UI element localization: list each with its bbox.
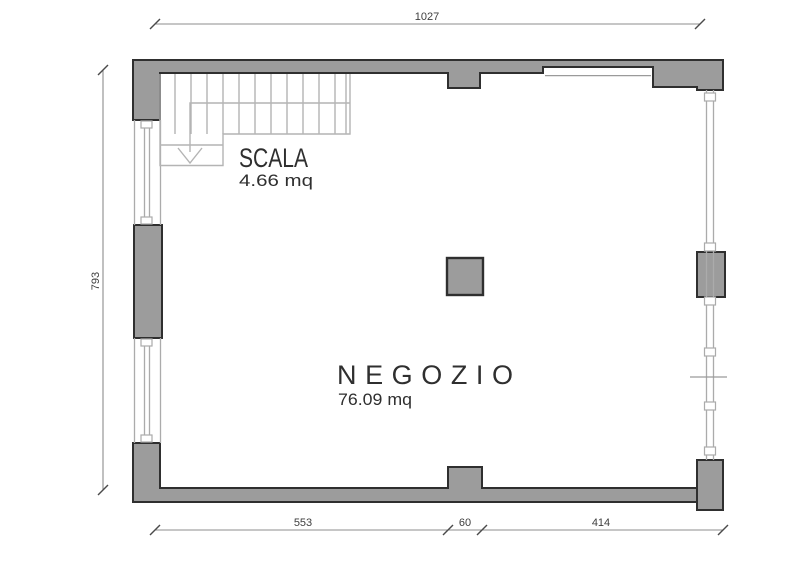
window-mullion <box>141 339 152 346</box>
room-label-negozio: NEGOZIO 76.09 mq <box>337 360 513 409</box>
glass-mullion <box>705 447 716 455</box>
glass-mullion <box>705 297 716 305</box>
wall-pillar-left <box>134 225 162 338</box>
glass-mullion <box>705 402 716 410</box>
room-name-negozio: NEGOZIO <box>337 360 513 390</box>
room-name-scala: SCALA <box>239 143 308 173</box>
dimension-label-top: 1027 <box>415 11 439 23</box>
glass-mullion <box>705 243 716 251</box>
room-area-scala: 4.66 mq <box>239 171 313 190</box>
corner-column-bottom-right <box>697 460 723 510</box>
glass-mullion <box>705 93 716 101</box>
dimension-label-left: 793 <box>90 272 102 290</box>
wall-pillar-right <box>697 252 725 297</box>
window-mullion <box>141 121 152 128</box>
structural-column-center <box>447 258 483 295</box>
window-left-lower <box>135 338 161 443</box>
window-left-upper <box>135 120 161 225</box>
floor-plan-drawing: 1027 793 553 60 414 SCALA 4.66 mq NEGOZI… <box>0 0 800 575</box>
dimension-bottom: 553 60 414 <box>150 517 728 535</box>
bottom-wall <box>133 443 697 502</box>
window-mullion <box>141 217 152 224</box>
glass-mullion <box>705 348 716 356</box>
dimension-label-bottom-left: 553 <box>294 517 312 529</box>
stair-treads <box>175 74 335 134</box>
room-area-negozio: 76.09 mq <box>338 390 412 409</box>
dimension-label-bottom-right: 414 <box>592 517 610 529</box>
dimension-label-bottom-center: 60 <box>459 517 471 529</box>
window-mullion <box>141 435 152 442</box>
floor-plan-page: 1027 793 553 60 414 SCALA 4.66 mq NEGOZI… <box>0 0 800 575</box>
dimension-left: 793 <box>90 65 108 495</box>
room-label-scala: SCALA 4.66 mq <box>239 143 313 190</box>
top-wall <box>133 60 723 120</box>
dimension-top: 1027 <box>150 11 705 29</box>
